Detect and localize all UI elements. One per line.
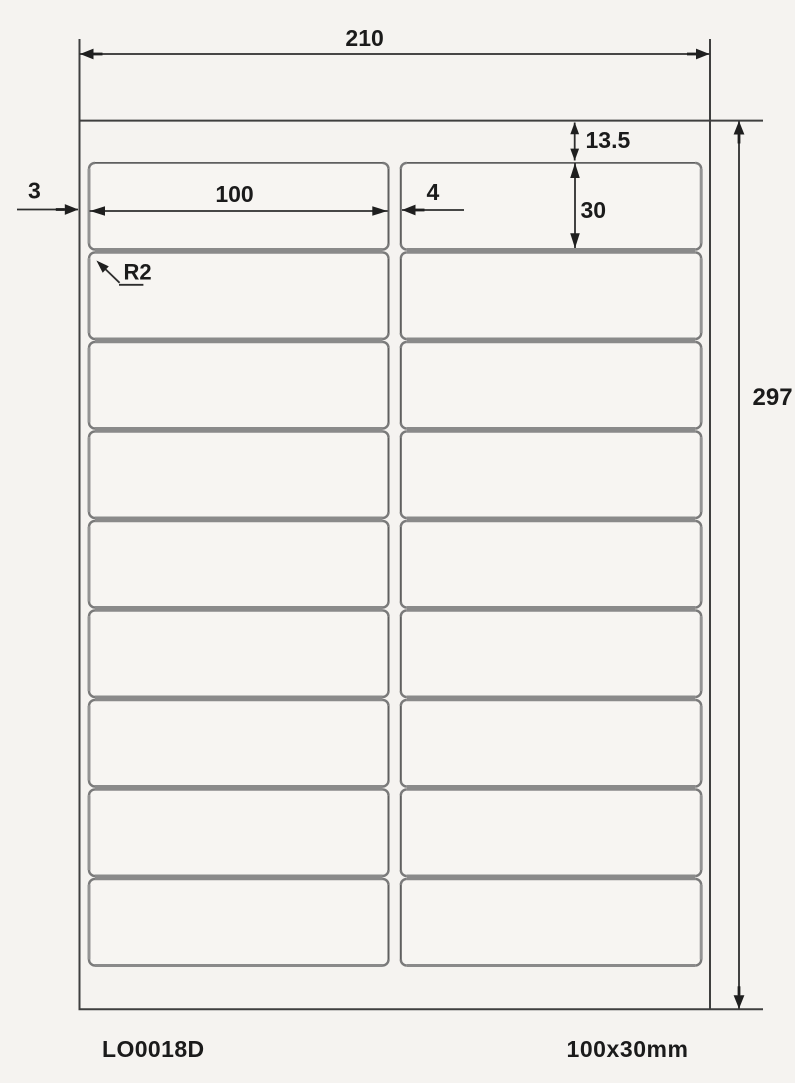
svg-text:3: 3: [28, 178, 41, 204]
svg-text:100: 100: [215, 181, 253, 207]
svg-text:210: 210: [345, 25, 383, 51]
svg-text:30: 30: [581, 197, 607, 223]
svg-text:LO0018D: LO0018D: [102, 1036, 205, 1062]
svg-text:R2: R2: [124, 260, 152, 285]
svg-text:297: 297: [753, 384, 793, 411]
svg-text:4: 4: [427, 179, 440, 205]
svg-text:100x30mm: 100x30mm: [567, 1036, 689, 1062]
svg-text:13.5: 13.5: [586, 127, 631, 153]
